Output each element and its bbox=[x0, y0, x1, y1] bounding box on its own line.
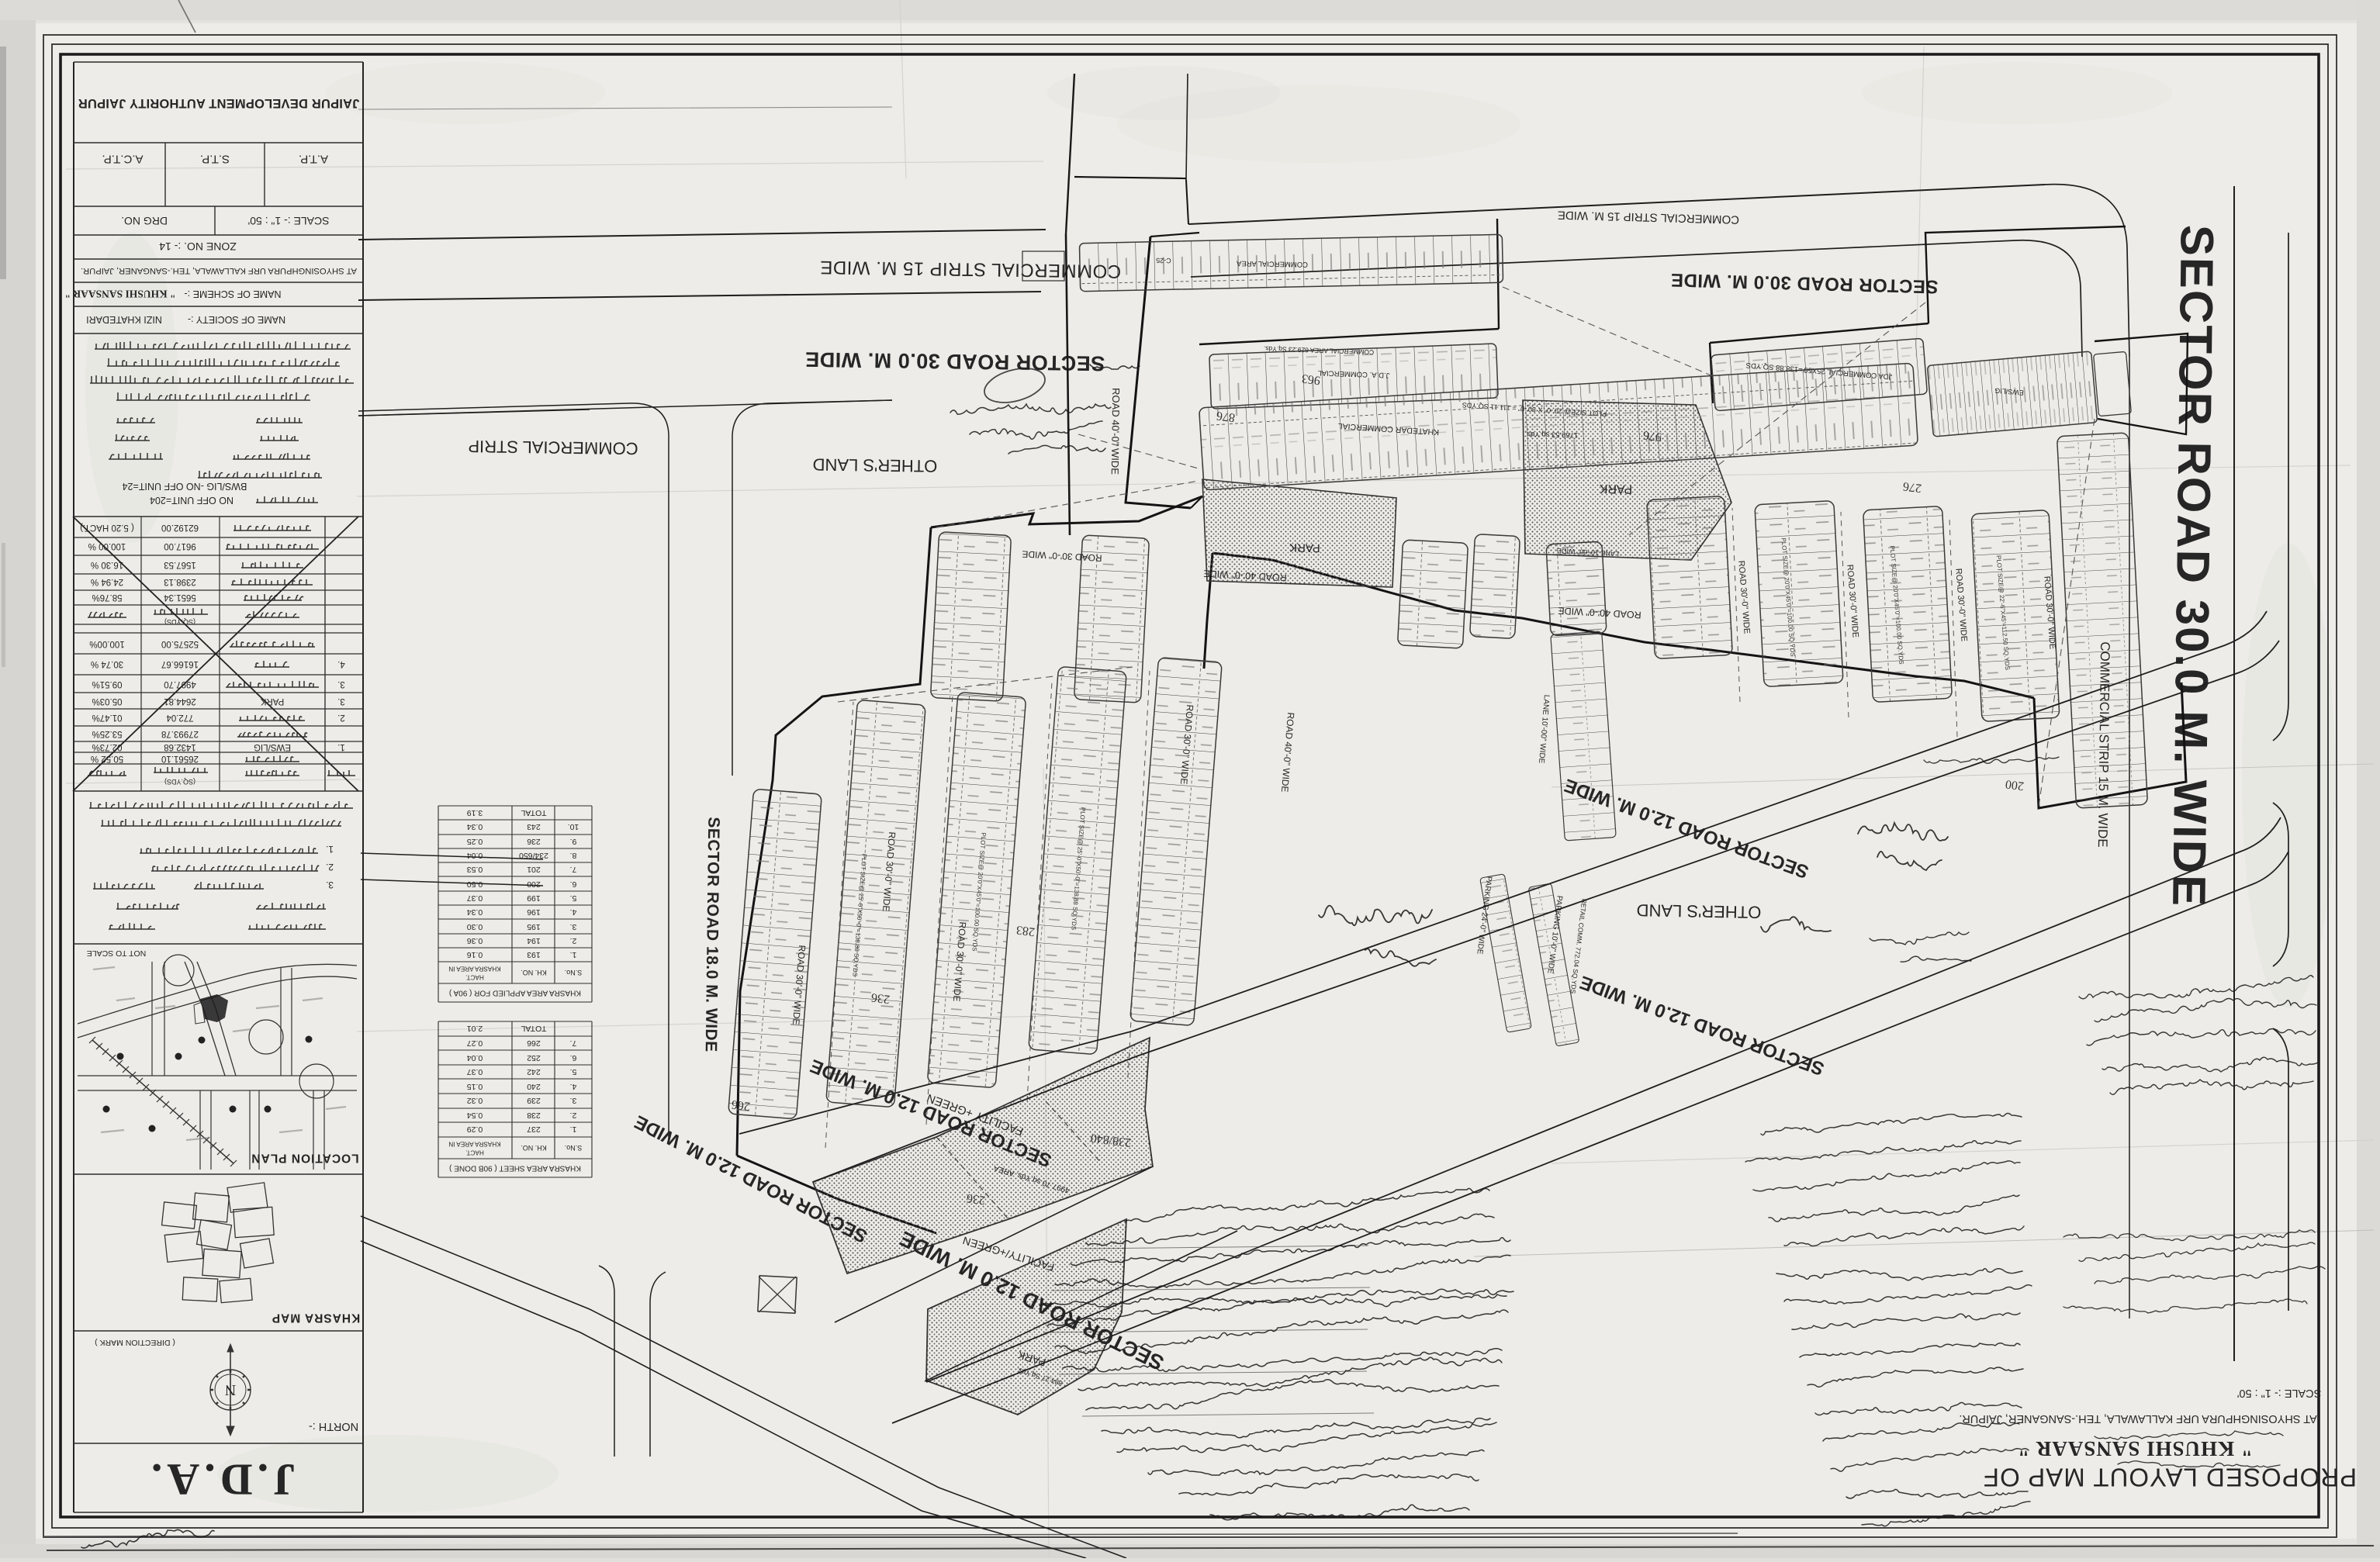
svg-text:SECTOR ROAD 30.0 M. WIDE: SECTOR ROAD 30.0 M. WIDE bbox=[805, 347, 1105, 375]
svg-text:HACT.: HACT. bbox=[465, 974, 484, 981]
svg-text:3.19: 3.19 bbox=[467, 808, 483, 817]
svg-text:BWS/LIG -NO OFF UNIT=24: BWS/LIG -NO OFF UNIT=24 bbox=[123, 481, 247, 492]
svg-text:0.16: 0.16 bbox=[467, 950, 483, 959]
svg-text:DRG NO.: DRG NO. bbox=[121, 215, 168, 227]
svg-text:194: 194 bbox=[527, 936, 541, 945]
svg-text:6.: 6. bbox=[570, 879, 577, 889]
svg-text:53.25%: 53.25% bbox=[92, 729, 122, 738]
svg-text:0.32: 0.32 bbox=[467, 1096, 483, 1105]
svg-text:A.C.T.P.: A.C.T.P. bbox=[102, 153, 143, 166]
svg-text:0.27: 0.27 bbox=[467, 1038, 483, 1048]
svg-text:TOTAL: TOTAL bbox=[521, 808, 546, 817]
svg-text:PARK: PARK bbox=[1599, 482, 1632, 496]
svg-text:62192.00: 62192.00 bbox=[161, 523, 199, 532]
svg-text:5.: 5. bbox=[570, 1067, 577, 1076]
svg-text:SECTOR ROAD 30.0 M. WIDE: SECTOR ROAD 30.0 M. WIDE bbox=[2163, 224, 2223, 907]
svg-text:0.25: 0.25 bbox=[467, 837, 483, 846]
svg-text:01.47%: 01.47% bbox=[92, 713, 122, 722]
svg-text:0.37: 0.37 bbox=[467, 1067, 483, 1076]
svg-text:24.94 %: 24.94 % bbox=[91, 577, 123, 586]
svg-text:1.: 1. bbox=[570, 950, 577, 959]
svg-text:976: 976 bbox=[1642, 428, 1662, 444]
svg-text:KHASRA AREA APPLIED FOR ( 90A: KHASRA AREA APPLIED FOR ( 90A ) bbox=[449, 989, 581, 997]
svg-text:KHASRA AREA IN: KHASRA AREA IN bbox=[448, 966, 500, 973]
svg-text:0.34: 0.34 bbox=[467, 822, 483, 831]
svg-text:0.50: 0.50 bbox=[467, 879, 483, 889]
svg-text:10.: 10. bbox=[568, 822, 579, 831]
svg-text:0.54: 0.54 bbox=[467, 1111, 483, 1120]
svg-text:195: 195 bbox=[527, 922, 541, 931]
svg-text:S.No.: S.No. bbox=[565, 969, 583, 976]
svg-text:9.: 9. bbox=[570, 837, 577, 846]
svg-text:2644.81: 2644.81 bbox=[164, 696, 196, 706]
svg-text:236: 236 bbox=[527, 837, 541, 846]
svg-text:4.: 4. bbox=[570, 1082, 577, 1091]
svg-text:" KHUSHI SANSAAR ": " KHUSHI SANSAAR " bbox=[65, 289, 176, 300]
svg-text:52575.00: 52575.00 bbox=[161, 639, 199, 648]
svg-text:1432.68: 1432.68 bbox=[164, 742, 196, 752]
svg-text:0.15: 0.15 bbox=[467, 1082, 483, 1091]
svg-text:2.01: 2.01 bbox=[467, 1024, 483, 1033]
svg-text:200: 200 bbox=[2005, 777, 2025, 793]
svg-text:HACT.: HACT. bbox=[465, 1149, 484, 1156]
svg-text:2.: 2. bbox=[570, 936, 577, 945]
svg-text:237: 237 bbox=[527, 1125, 541, 1134]
svg-text:NO OFF UNIT=204: NO OFF UNIT=204 bbox=[150, 495, 234, 506]
svg-text:0.29: 0.29 bbox=[467, 1125, 483, 1134]
svg-text:N: N bbox=[225, 1381, 236, 1398]
svg-text:KH. NO.: KH. NO. bbox=[521, 1144, 547, 1152]
svg-text:9617.00: 9617.00 bbox=[164, 541, 196, 551]
svg-text:243: 243 bbox=[527, 822, 541, 831]
svg-text:6.: 6. bbox=[570, 1053, 577, 1063]
svg-text:16166.67: 16166.67 bbox=[161, 659, 199, 669]
svg-text:PARK: PARK bbox=[1289, 541, 1320, 555]
svg-text:772.04: 772.04 bbox=[166, 713, 194, 722]
svg-text:NAME OF SCHEME :-: NAME OF SCHEME :- bbox=[184, 289, 281, 299]
svg-text:5651.34: 5651.34 bbox=[164, 593, 196, 602]
svg-text:3.: 3. bbox=[337, 696, 345, 706]
svg-text:0.34: 0.34 bbox=[467, 907, 483, 917]
svg-text:7.: 7. bbox=[570, 1038, 577, 1048]
svg-text:S.T.P.: S.T.P. bbox=[200, 153, 230, 166]
svg-text:COMMERCIAL STRIP: COMMERCIAL STRIP bbox=[468, 437, 638, 458]
svg-text:J.D.A.: J.D.A. bbox=[147, 1455, 296, 1505]
svg-text:AT SHYOSINGHPURA URF KALLAWALA: AT SHYOSINGHPURA URF KALLAWALA, TEH.-SAN… bbox=[1959, 1412, 2316, 1425]
svg-text:KHASRA MAP: KHASRA MAP bbox=[272, 1311, 360, 1325]
svg-text:PARK: PARK bbox=[260, 696, 284, 706]
svg-text:1.: 1. bbox=[337, 742, 345, 752]
svg-text:4.: 4. bbox=[570, 907, 577, 917]
svg-text:1.: 1. bbox=[570, 1125, 577, 1134]
svg-text:A.T.P.: A.T.P. bbox=[299, 153, 328, 166]
svg-text:ZONE NO. :- 14: ZONE NO. :- 14 bbox=[159, 240, 237, 253]
svg-text:KH. NO.: KH. NO. bbox=[521, 969, 547, 976]
svg-text:OTHER'S LAND: OTHER'S LAND bbox=[812, 454, 937, 475]
svg-text:963: 963 bbox=[1301, 371, 1321, 387]
svg-text:C-25: C-25 bbox=[1156, 257, 1171, 264]
svg-text:240: 240 bbox=[527, 1082, 541, 1091]
svg-text:OTHER'S LAND: OTHER'S LAND bbox=[1636, 900, 1761, 922]
svg-text:SCALE :- 1" : 50': SCALE :- 1" : 50' bbox=[248, 215, 330, 227]
svg-text:30.74 %: 30.74 % bbox=[91, 659, 123, 669]
svg-text:5.: 5. bbox=[570, 893, 577, 903]
svg-text:4.: 4. bbox=[337, 659, 345, 669]
svg-text:ROAD 40'-0" WIDE: ROAD 40'-0" WIDE bbox=[1109, 388, 1122, 475]
svg-text:0.36: 0.36 bbox=[467, 936, 483, 945]
svg-text:S.No.: S.No. bbox=[565, 1144, 583, 1152]
svg-text:201: 201 bbox=[527, 865, 541, 874]
svg-text:EWS/LIG: EWS/LIG bbox=[254, 742, 291, 752]
svg-text:( DIRECTION MARK ): ( DIRECTION MARK ) bbox=[95, 1338, 175, 1347]
svg-text:02.73%: 02.73% bbox=[92, 742, 122, 752]
svg-text:242: 242 bbox=[527, 1067, 541, 1076]
svg-text:7.: 7. bbox=[570, 865, 577, 874]
svg-text:KHASRA AREA SHEET ( 90B DONE ): KHASRA AREA SHEET ( 90B DONE ) bbox=[449, 1164, 581, 1173]
svg-text:(SQ.YDS): (SQ.YDS) bbox=[164, 778, 195, 786]
svg-text:200: 200 bbox=[527, 879, 541, 889]
svg-text:2398.13: 2398.13 bbox=[164, 577, 196, 586]
svg-text:05.03%: 05.03% bbox=[92, 696, 122, 706]
svg-text:236: 236 bbox=[870, 990, 891, 1006]
svg-text:NORTH :-: NORTH :- bbox=[309, 1420, 358, 1432]
svg-text:NOT TO SCALE: NOT TO SCALE bbox=[87, 949, 146, 958]
svg-text:NIZI KHATEDARI: NIZI KHATEDARI bbox=[86, 314, 162, 325]
svg-text:238: 238 bbox=[527, 1111, 541, 1120]
svg-text:3.: 3. bbox=[570, 1096, 577, 1105]
svg-text:193: 193 bbox=[527, 950, 541, 959]
svg-text:" KHUSHI SANSAAR ": " KHUSHI SANSAAR " bbox=[2017, 1437, 2253, 1460]
svg-text:0.53: 0.53 bbox=[467, 865, 483, 874]
svg-text:876: 876 bbox=[1216, 409, 1236, 424]
svg-text:0.30: 0.30 bbox=[467, 922, 483, 931]
svg-text:58.76%: 58.76% bbox=[92, 593, 122, 602]
svg-text:3.: 3. bbox=[570, 922, 577, 931]
svg-text:JAIPUR DEVELOPMENT AUTHORITY J: JAIPUR DEVELOPMENT AUTHORITY JAIPUR bbox=[78, 96, 360, 110]
svg-text:COMMERCIAL AREA: COMMERCIAL AREA bbox=[1236, 259, 1308, 269]
svg-text:0.04: 0.04 bbox=[467, 1053, 483, 1063]
svg-text:COMMERCIAL STRIP 15 M. WIDE: COMMERCIAL STRIP 15 M. WIDE bbox=[820, 257, 1122, 282]
svg-text:AT SHYOSINGHPURA URF KALLAWALA: AT SHYOSINGHPURA URF KALLAWALA, TEH.-SAN… bbox=[81, 266, 357, 275]
svg-text:2.: 2. bbox=[337, 713, 345, 722]
svg-text:0.37: 0.37 bbox=[467, 893, 483, 903]
svg-text:PROPOSED LAYOUT MAP OF: PROPOSED LAYOUT MAP OF bbox=[1983, 1464, 2357, 1492]
svg-text:SCALE :- 1" : 50': SCALE :- 1" : 50' bbox=[2236, 1387, 2321, 1399]
svg-text:27993.78: 27993.78 bbox=[161, 729, 199, 738]
svg-text:252: 252 bbox=[527, 1053, 541, 1063]
svg-text:NAME OF SOCIETY :-: NAME OF SOCIETY :- bbox=[188, 314, 285, 325]
svg-text:199: 199 bbox=[527, 893, 541, 903]
svg-text:239: 239 bbox=[527, 1096, 541, 1105]
svg-text:196: 196 bbox=[527, 907, 541, 917]
svg-text:1567.53: 1567.53 bbox=[164, 560, 196, 569]
svg-text:LOCATION PLAN: LOCATION PLAN bbox=[251, 1152, 358, 1165]
svg-text:276: 276 bbox=[1902, 479, 1922, 495]
svg-text:236: 236 bbox=[966, 1191, 986, 1207]
svg-text:3.: 3. bbox=[337, 679, 345, 689]
svg-text:100.00%: 100.00% bbox=[89, 639, 124, 648]
svg-text:SECTOR ROAD 18.0 M. WIDE: SECTOR ROAD 18.0 M. WIDE bbox=[702, 817, 723, 1052]
svg-text:KHASRA AREA IN: KHASRA AREA IN bbox=[448, 1141, 500, 1148]
svg-text:09.51%: 09.51% bbox=[92, 679, 122, 689]
svg-text:266: 266 bbox=[527, 1038, 541, 1048]
svg-text:266: 266 bbox=[731, 1097, 751, 1113]
svg-text:TOTAL: TOTAL bbox=[521, 1024, 546, 1033]
svg-text:2.: 2. bbox=[570, 1111, 577, 1120]
svg-text:2.: 2. bbox=[326, 862, 334, 873]
svg-text:26561.10: 26561.10 bbox=[161, 754, 199, 763]
svg-text:0.04: 0.04 bbox=[467, 851, 483, 860]
svg-text:1.: 1. bbox=[326, 844, 334, 855]
svg-text:3.: 3. bbox=[326, 879, 334, 890]
svg-text:16.30 %: 16.30 % bbox=[91, 560, 123, 569]
svg-text:283: 283 bbox=[1015, 923, 1036, 938]
svg-text:8.: 8. bbox=[570, 851, 577, 860]
